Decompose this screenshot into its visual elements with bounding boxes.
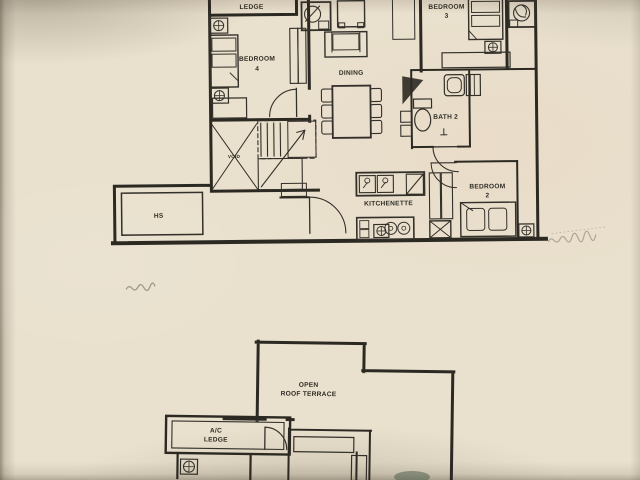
room-label-ledge: LEDGE: [239, 4, 263, 11]
terrace-walls: [223, 341, 454, 480]
lower-floor-plan: OPEN ROOF TERRACE A/C LEDGE: [165, 340, 454, 480]
floor-plan-drawing: LEDGE BEDROOM 4 VOID: [0, 0, 640, 480]
room-label-bedroom3: BEDROOM: [428, 4, 465, 11]
upper-floor-plan: LEDGE BEDROOM 4 VOID: [110, 0, 545, 243]
wardrobe-hatch: [351, 455, 366, 480]
dining-table: [332, 86, 371, 138]
door-arc: [309, 197, 345, 233]
wall-fixture-icon: [519, 224, 534, 237]
room-label-bath2: BATH 2: [433, 114, 458, 121]
armchair-icon: [337, 1, 364, 28]
floor-plan-photo: LEDGE BEDROOM 4 VOID: [0, 0, 640, 480]
ac-ledge-inner: [172, 421, 284, 450]
room-label-roof-terrace-line2: ROOF TERRACE: [281, 390, 337, 398]
kitchen-counter: [356, 172, 424, 196]
toilet-icon: [413, 99, 431, 131]
room-label-bedroom2: BEDROOM: [469, 183, 506, 190]
room-label-kitchenette: KITCHENETTE: [364, 200, 413, 208]
lower-inner-walls: [177, 453, 250, 479]
room-label-bedroom3-number: 3: [445, 13, 449, 20]
wall-fixture-icon: [374, 224, 389, 237]
basin-icon: [301, 2, 330, 30]
wardrobe-hatch: [429, 173, 440, 219]
bed-icon: [210, 35, 239, 87]
room-label-roof-terrace: OPEN: [299, 382, 319, 389]
door-arc: [433, 147, 458, 172]
wardrobe-hatch: [212, 98, 246, 118]
shelf-icon: [401, 111, 412, 136]
pencil-note: [126, 283, 155, 291]
ledge-hatch: [392, 0, 414, 39]
room-label-bedroom4-number: 4: [255, 66, 259, 73]
room-label-void: VOID: [228, 154, 241, 159]
bedside-table-icon: [210, 18, 228, 33]
room-label-ac-ledge: A/C: [210, 427, 222, 434]
bath2-drain: [441, 129, 447, 135]
dining-chairs: [321, 88, 381, 134]
bedside-table-icon: [485, 41, 501, 53]
bed-icon: [461, 202, 516, 237]
room-label-dining: DINING: [339, 70, 364, 77]
paper-smudge: [394, 471, 430, 480]
wall-fixture-icon: [180, 459, 197, 474]
door-leaf: [402, 76, 423, 104]
room-label-bedroom2-number: 2: [485, 192, 489, 199]
bottom-wall: [113, 239, 546, 244]
bed-icon: [468, 0, 502, 40]
room-label-ac-ledge-line2: LEDGE: [204, 436, 228, 443]
wardrobe-hatch: [294, 437, 354, 453]
armchair-icon: [325, 32, 367, 57]
door-arc: [269, 88, 296, 116]
wardrobe-hatch: [441, 173, 452, 219]
aircon-unit-icon: [508, 1, 535, 27]
stairs: [258, 120, 317, 190]
sofa-icon: [290, 28, 307, 83]
room-label-bedroom4: BEDROOM: [239, 56, 276, 63]
room-label-hs: HS: [154, 213, 164, 220]
pencil-note: [547, 227, 607, 244]
vanity-icon: [444, 74, 480, 95]
column-marker: [430, 221, 451, 238]
wardrobe-hatch: [442, 52, 510, 68]
